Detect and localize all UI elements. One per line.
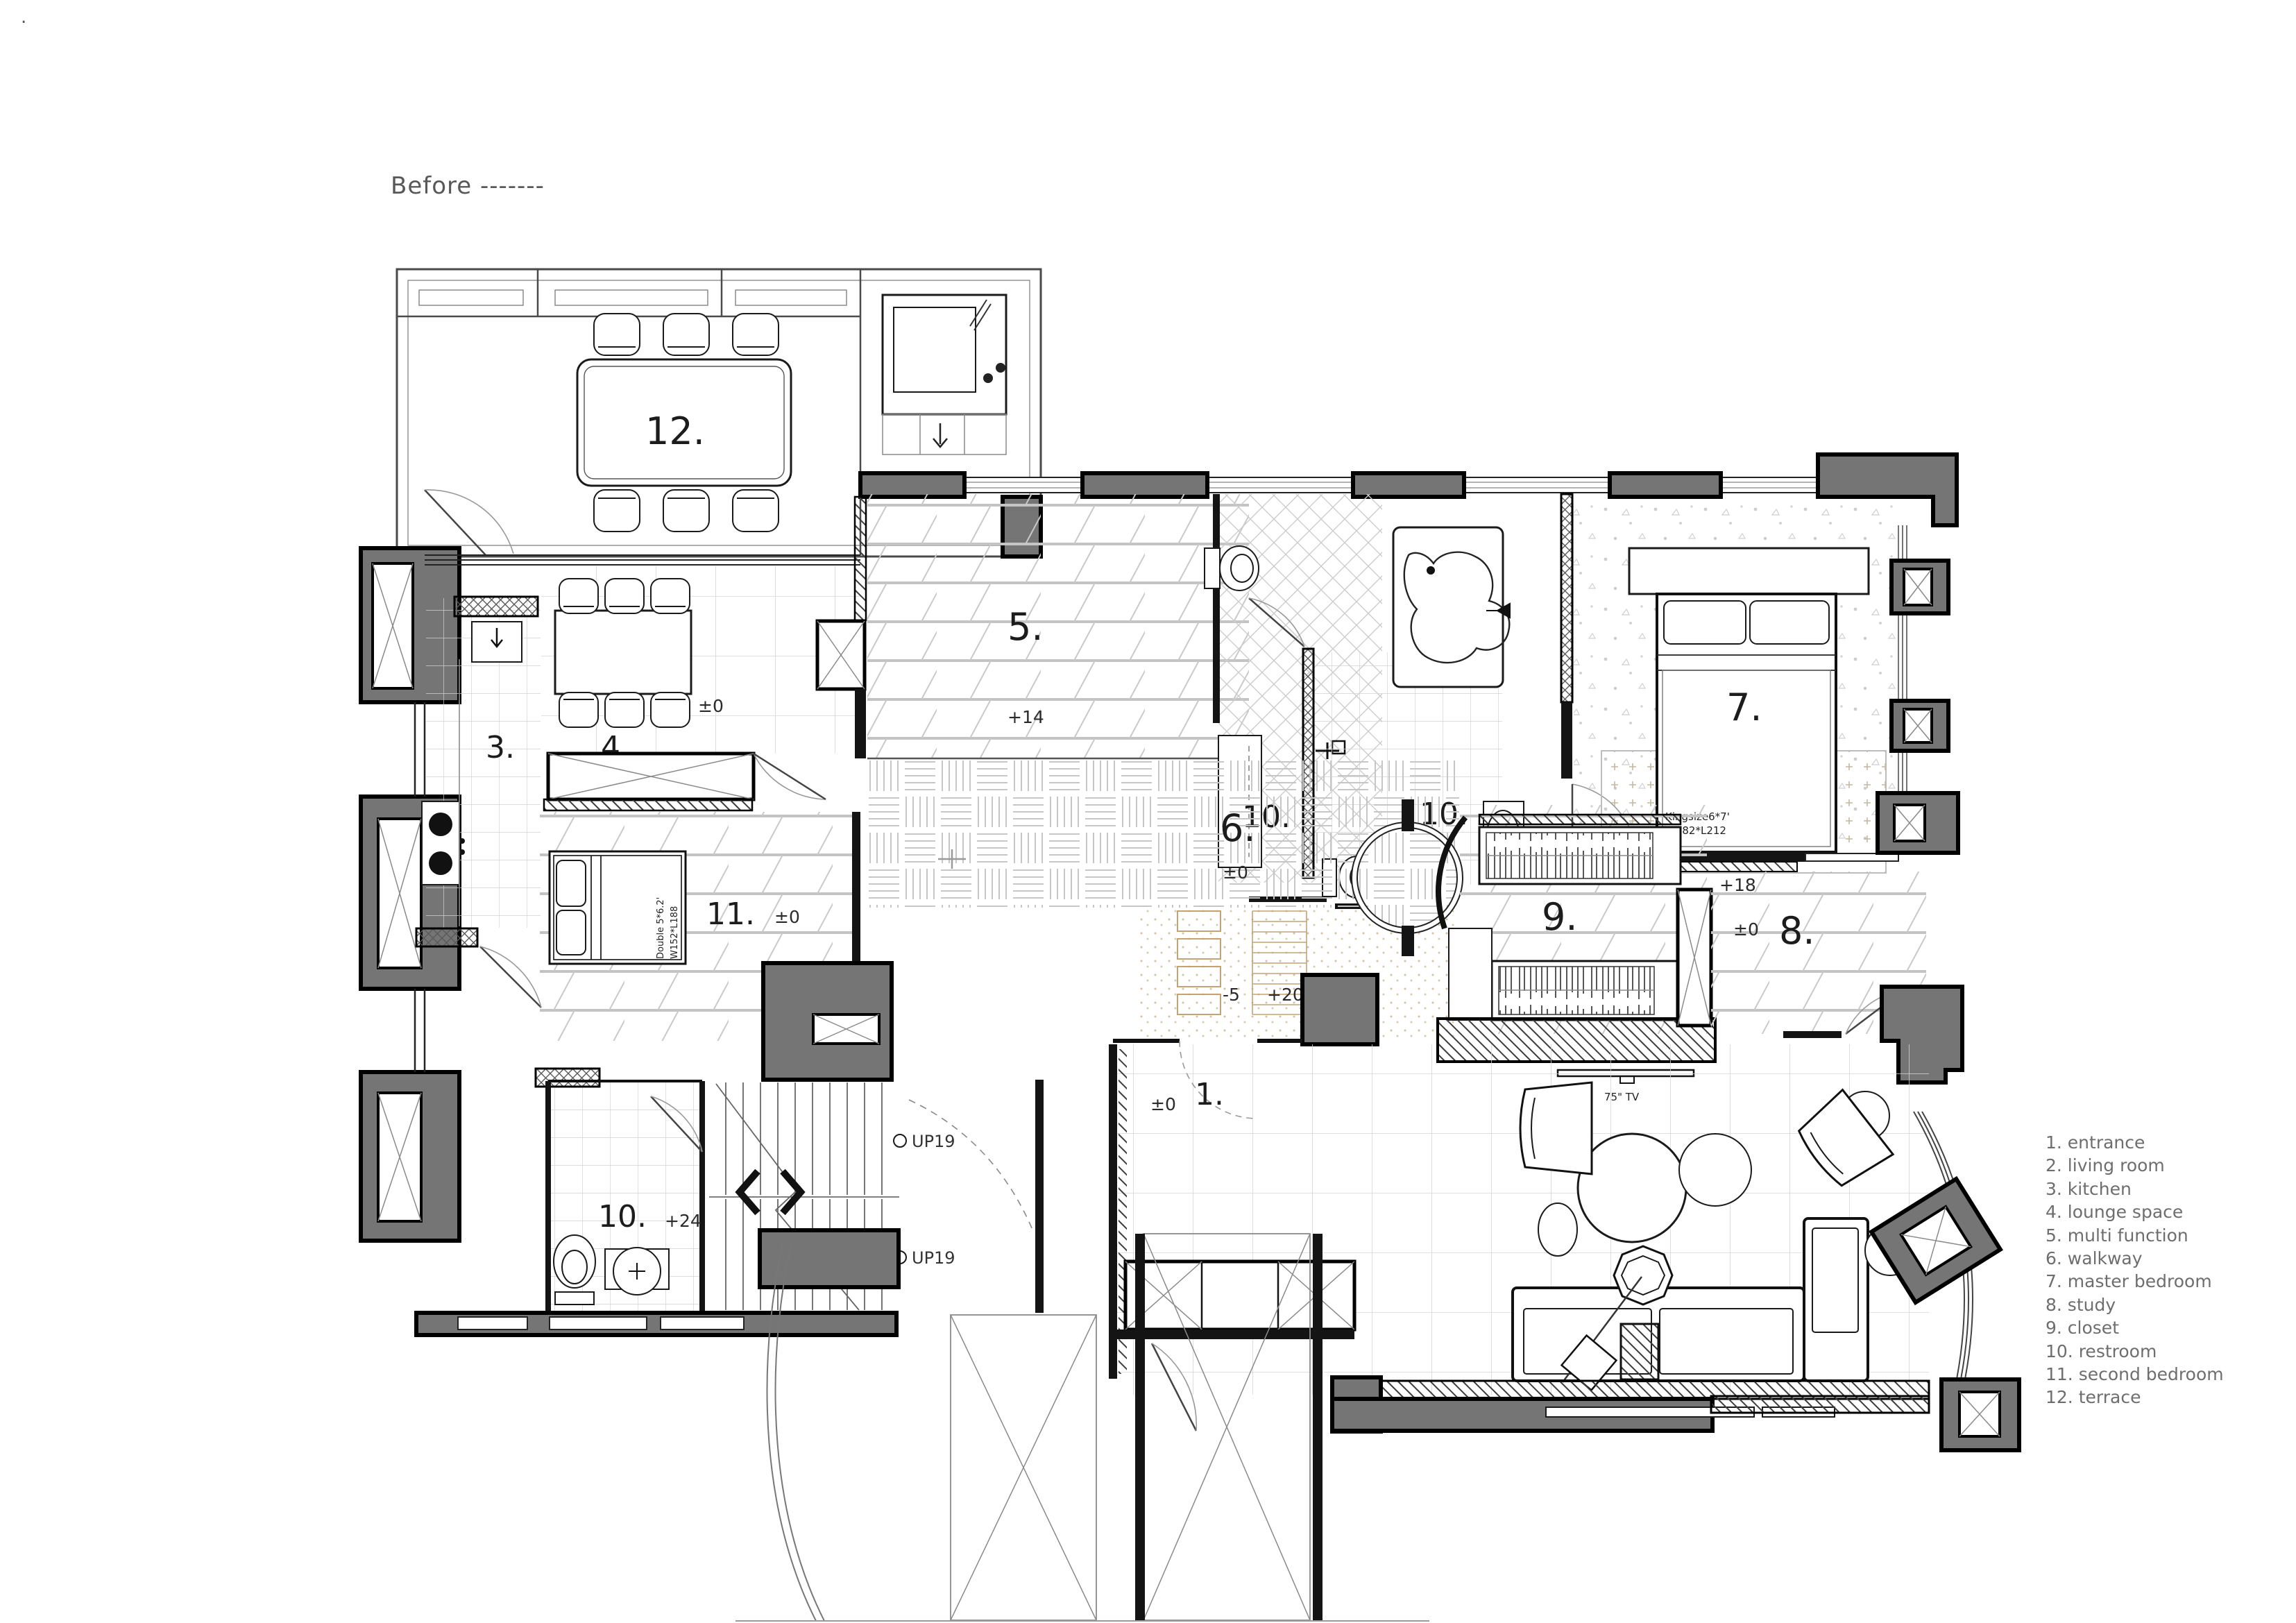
room-label-10c: 10. bbox=[598, 1199, 647, 1234]
restroom-c: 10. +24 bbox=[536, 1069, 705, 1313]
level-label: +24 bbox=[665, 1211, 701, 1231]
toilet bbox=[554, 1235, 595, 1305]
level-label: +20 bbox=[1267, 985, 1304, 1005]
facade-column bbox=[1941, 1379, 2019, 1450]
floor-plan-sheet: . Before ------- 1. entrance 2. living r… bbox=[0, 0, 2296, 1623]
room-label-6: 6. bbox=[1220, 806, 1256, 850]
floor-plan-drawing: 12. bbox=[0, 0, 2296, 1623]
bath-bedroom-wall bbox=[1561, 494, 1572, 702]
bed-size-label: W152*L188 bbox=[670, 906, 680, 959]
stairs-up-label: UP19 bbox=[912, 1248, 955, 1268]
room-label-12: 12. bbox=[645, 409, 705, 453]
kitchen-door bbox=[480, 946, 541, 1008]
closet-counter bbox=[1449, 928, 1492, 1020]
room-label-9: 9. bbox=[1542, 895, 1578, 939]
wardrobe-top bbox=[1479, 815, 1681, 884]
level-label: ±0 bbox=[698, 696, 724, 716]
room-label-11: 11. bbox=[706, 897, 755, 932]
multifunction-room: 5. +14 bbox=[817, 494, 1249, 759]
level-label: +14 bbox=[1007, 707, 1044, 727]
toilet bbox=[1205, 546, 1259, 590]
level-label: ±0 bbox=[1150, 1094, 1176, 1114]
window-pier bbox=[1891, 701, 1948, 751]
kitchen-sink bbox=[472, 622, 522, 662]
lounge-room: 4. ±0 bbox=[541, 566, 860, 810]
level-label: ±0 bbox=[774, 907, 800, 927]
room-label-8: 8. bbox=[1779, 909, 1815, 953]
stairs-up-label: UP19 bbox=[912, 1132, 955, 1151]
bed-size-label: Double 5*6.2' bbox=[656, 897, 666, 959]
cooktop bbox=[422, 801, 465, 885]
bathtub bbox=[1393, 527, 1510, 687]
level-label: ±0 bbox=[1733, 919, 1759, 940]
study-door-threshold bbox=[1783, 1031, 1842, 1038]
armchair bbox=[1520, 1082, 1592, 1174]
living-room: 2. bbox=[1332, 1044, 1929, 1431]
stair-direction-chevrons bbox=[740, 1171, 801, 1213]
level-label: -5 bbox=[1223, 985, 1240, 1005]
room-label-5: 5. bbox=[1007, 605, 1044, 649]
level-label: ±0 bbox=[1223, 863, 1248, 883]
wardrobe-band bbox=[544, 754, 826, 810]
speaker bbox=[1621, 1324, 1658, 1379]
kitchen-half-wall bbox=[454, 597, 538, 616]
room-label-7: 7. bbox=[1726, 686, 1762, 729]
side-table bbox=[1538, 1203, 1577, 1256]
room-label-1: 1. bbox=[1195, 1077, 1224, 1112]
basin bbox=[605, 1248, 669, 1295]
entrance-room: ±0 1. bbox=[1109, 1041, 1381, 1431]
coffee-table bbox=[1578, 1134, 1686, 1242]
kitchen-half-wall bbox=[416, 928, 477, 946]
walkway: 6. ±0 -5 +20 bbox=[866, 760, 1463, 1044]
wardrobe-bottom bbox=[1492, 961, 1681, 1020]
room-label-3: 3. bbox=[486, 730, 515, 765]
entry-pier bbox=[1302, 975, 1377, 1044]
lounge-table bbox=[555, 611, 691, 694]
coffee-table-small bbox=[1679, 1134, 1751, 1206]
window-pier bbox=[1891, 561, 1948, 613]
